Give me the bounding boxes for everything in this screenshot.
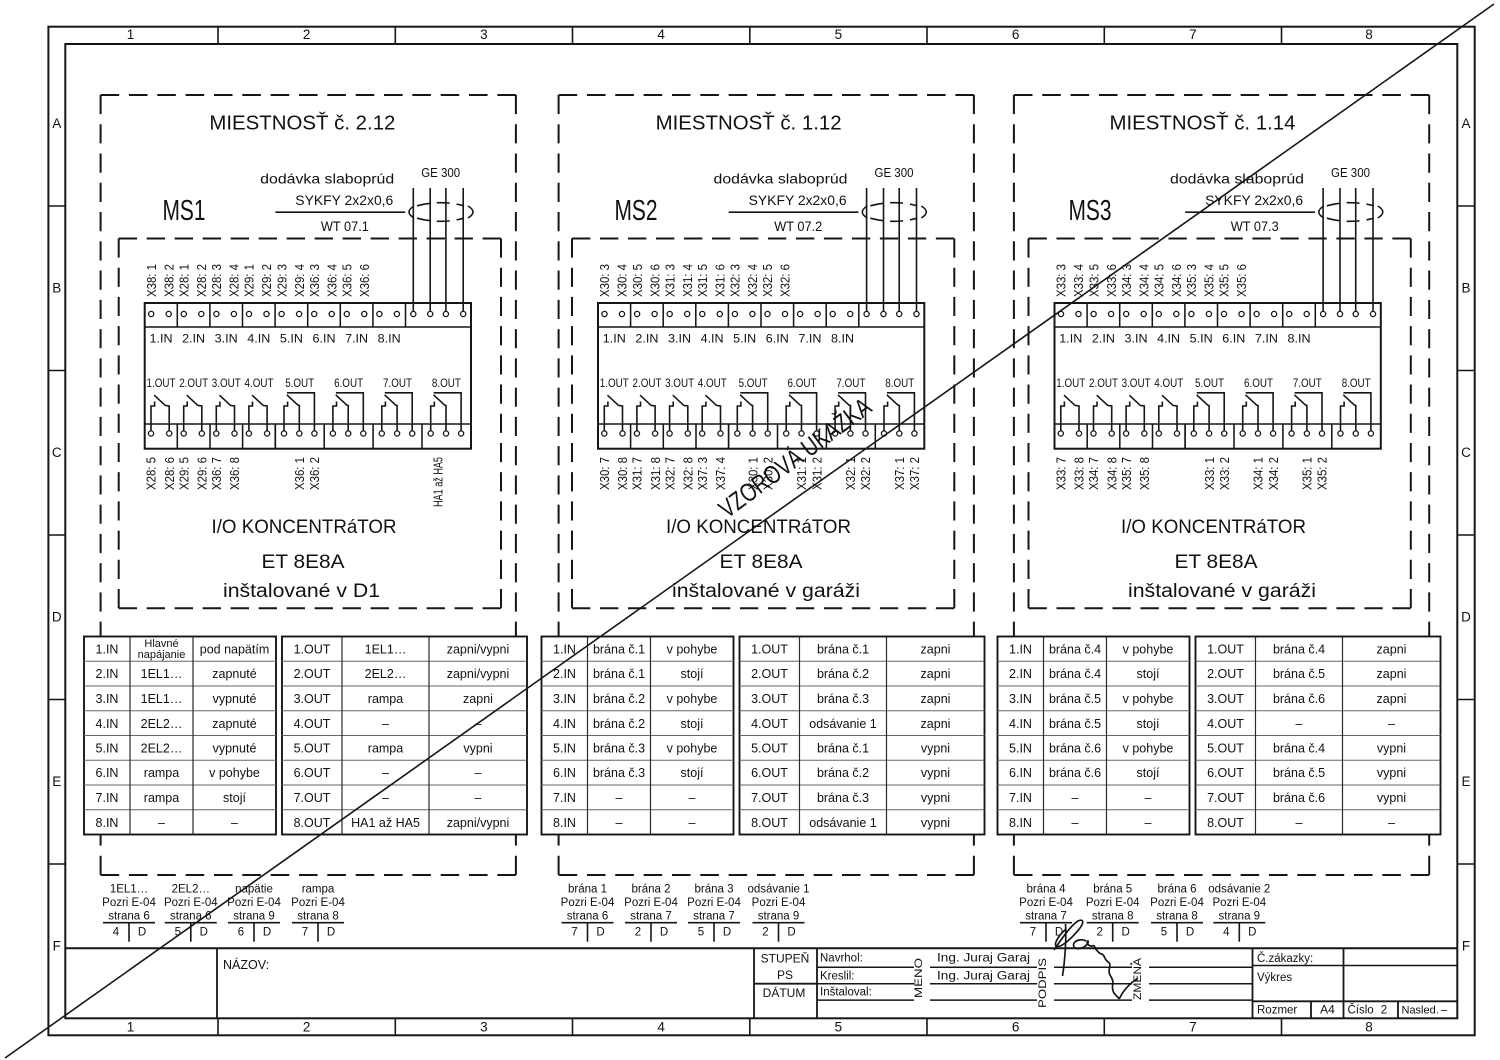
- svg-text:D: D: [1122, 927, 1130, 939]
- svg-text:X36: 1: X36: 1: [292, 457, 307, 490]
- svg-text:–: –: [231, 816, 238, 830]
- svg-text:X35: 3: X35: 3: [1184, 264, 1199, 297]
- svg-text:zapni: zapni: [921, 717, 951, 731]
- svg-text:2.OUT: 2.OUT: [633, 378, 662, 390]
- svg-text:8: 8: [1365, 27, 1373, 42]
- svg-text:X28: 1: X28: 1: [177, 264, 192, 297]
- svg-text:7: 7: [1030, 927, 1036, 939]
- svg-text:napájanie: napájanie: [138, 649, 186, 661]
- svg-text:6.IN: 6.IN: [1009, 766, 1032, 780]
- svg-text:8.OUT: 8.OUT: [1207, 816, 1244, 830]
- svg-text:2EL2…: 2EL2…: [141, 717, 183, 731]
- svg-text:Pozri E-04: Pozri E-04: [752, 897, 806, 909]
- svg-text:vypni: vypni: [1377, 791, 1406, 805]
- svg-text:v pohybe: v pohybe: [1123, 692, 1174, 706]
- svg-text:2.IN: 2.IN: [635, 334, 658, 346]
- svg-text:X31: 6: X31: 6: [713, 264, 728, 297]
- svg-text:6.OUT: 6.OUT: [334, 378, 363, 390]
- svg-text:5.OUT: 5.OUT: [1207, 742, 1244, 756]
- svg-text:MIESTNOSŤ č. 2.12: MIESTNOSŤ č. 2.12: [209, 112, 395, 135]
- svg-text:Inštaloval:: Inštaloval:: [820, 987, 872, 999]
- svg-text:6: 6: [1012, 1020, 1020, 1035]
- svg-text:MENO: MENO: [913, 957, 925, 998]
- svg-text:vypni: vypni: [921, 791, 950, 805]
- svg-text:X36: 5: X36: 5: [340, 264, 355, 297]
- svg-text:brána 6: brána 6: [1157, 884, 1196, 896]
- svg-text:rampa: rampa: [144, 766, 179, 780]
- svg-text:brána č.2: brána č.2: [817, 667, 869, 681]
- svg-text:brána 3: brána 3: [694, 884, 733, 896]
- svg-text:brána č.6: brána č.6: [1273, 692, 1325, 706]
- svg-text:zapnuté: zapnuté: [212, 667, 257, 681]
- svg-text:4.IN: 4.IN: [1009, 717, 1032, 731]
- svg-text:I/O KONCENTRáTOR: I/O KONCENTRáTOR: [212, 516, 397, 538]
- svg-text:D: D: [787, 927, 795, 939]
- svg-text:E: E: [1461, 774, 1470, 789]
- svg-text:1.IN: 1.IN: [1009, 643, 1032, 657]
- svg-text:X31: 7: X31: 7: [630, 457, 645, 490]
- svg-text:strana 9: strana 9: [233, 911, 275, 923]
- svg-text:7.OUT: 7.OUT: [383, 378, 412, 390]
- svg-text:3.OUT: 3.OUT: [751, 692, 788, 706]
- svg-text:Ing. Juraj Garaj: Ing. Juraj Garaj: [937, 971, 1030, 983]
- svg-text:3.OUT: 3.OUT: [1207, 692, 1244, 706]
- svg-text:zapni: zapni: [921, 643, 951, 657]
- svg-text:–: –: [475, 791, 482, 805]
- svg-text:X33: 7: X33: 7: [1054, 457, 1069, 490]
- svg-text:–: –: [1388, 717, 1395, 731]
- svg-text:5.IN: 5.IN: [733, 334, 756, 346]
- svg-text:X30: 3: X30: 3: [597, 264, 612, 297]
- svg-text:2.IN: 2.IN: [182, 334, 205, 346]
- svg-text:8.IN: 8.IN: [1009, 816, 1032, 830]
- svg-text:4.OUT: 4.OUT: [1154, 378, 1183, 390]
- svg-text:Pozri E-04: Pozri E-04: [164, 897, 218, 909]
- svg-text:zapni: zapni: [463, 692, 493, 706]
- svg-text:1.IN: 1.IN: [150, 334, 173, 346]
- svg-text:Navrhol:: Navrhol:: [820, 953, 863, 965]
- svg-text:1.OUT: 1.OUT: [600, 378, 629, 390]
- svg-text:vypni: vypni: [1377, 742, 1406, 756]
- svg-text:X30: 5: X30: 5: [630, 264, 645, 297]
- svg-text:brána č.3: brána č.3: [593, 766, 645, 780]
- svg-text:3.IN: 3.IN: [553, 692, 576, 706]
- svg-text:5: 5: [698, 927, 704, 939]
- svg-text:dodávka slaboprúd: dodávka slaboprúd: [1170, 172, 1304, 187]
- svg-text:PS: PS: [777, 968, 793, 982]
- svg-text:strana 8: strana 8: [1092, 911, 1134, 923]
- svg-text:brána č.6: brána č.6: [1049, 742, 1101, 756]
- svg-text:4.IN: 4.IN: [96, 717, 119, 731]
- svg-text:8.IN: 8.IN: [831, 334, 854, 346]
- svg-text:D: D: [1461, 610, 1471, 625]
- svg-text:brána č.5: brána č.5: [1049, 692, 1101, 706]
- svg-text:X29: 3: X29: 3: [274, 264, 289, 297]
- svg-text:PODPIS: PODPIS: [1037, 958, 1049, 1008]
- svg-text:WT 07.1: WT 07.1: [321, 219, 369, 234]
- svg-text:Rozmer: Rozmer: [1257, 1005, 1297, 1017]
- svg-text:6.OUT: 6.OUT: [751, 766, 788, 780]
- svg-text:D: D: [723, 927, 731, 939]
- svg-text:X34: 1: X34: 1: [1251, 457, 1266, 490]
- svg-text:8.IN: 8.IN: [1288, 334, 1311, 346]
- svg-text:X32: 5: X32: 5: [760, 264, 775, 297]
- svg-text:X33: 1: X33: 1: [1202, 457, 1217, 490]
- svg-text:brána č.1: brána č.1: [817, 742, 869, 756]
- svg-text:4: 4: [657, 27, 665, 42]
- svg-text:brána č.5: brána č.5: [1273, 667, 1325, 681]
- svg-text:X29: 2: X29: 2: [259, 264, 274, 297]
- svg-text:X36: 2: X36: 2: [307, 457, 322, 490]
- svg-text:Pozri E-04: Pozri E-04: [1150, 897, 1204, 909]
- svg-text:X29: 5: X29: 5: [176, 457, 191, 490]
- svg-text:SYKFY 2x2x0,6: SYKFY 2x2x0,6: [749, 193, 847, 208]
- svg-text:vypni: vypni: [921, 816, 950, 830]
- svg-text:7.IN: 7.IN: [96, 791, 119, 805]
- svg-text:5.OUT: 5.OUT: [285, 378, 314, 390]
- svg-text:brána č.1: brána č.1: [593, 643, 645, 657]
- svg-text:X35: 7: X35: 7: [1119, 457, 1134, 490]
- svg-text:X37: 2: X37: 2: [907, 457, 922, 490]
- svg-text:5.IN: 5.IN: [1190, 334, 1213, 346]
- svg-text:5.IN: 5.IN: [96, 742, 119, 756]
- svg-text:MS1: MS1: [163, 195, 206, 227]
- svg-text:strana 8: strana 8: [1156, 911, 1198, 923]
- svg-text:zapni/vypni: zapni/vypni: [447, 667, 510, 681]
- svg-text:8.IN: 8.IN: [96, 816, 119, 830]
- svg-text:Ing. Juraj Garaj: Ing. Juraj Garaj: [937, 953, 1030, 965]
- svg-text:X28: 3: X28: 3: [209, 264, 224, 297]
- svg-text:zapni: zapni: [1377, 667, 1407, 681]
- svg-text:MIESTNOSŤ č. 1.14: MIESTNOSŤ č. 1.14: [1110, 112, 1296, 135]
- svg-text:vypnuté: vypnuté: [213, 742, 257, 756]
- svg-text:X33: 6: X33: 6: [1104, 264, 1119, 297]
- svg-text:X35: 6: X35: 6: [1234, 264, 1249, 297]
- svg-text:X35: 8: X35: 8: [1137, 457, 1152, 490]
- svg-text:napätie: napätie: [235, 884, 273, 896]
- svg-text:4.IN: 4.IN: [553, 717, 576, 731]
- svg-text:strana 7: strana 7: [630, 911, 672, 923]
- svg-text:vypni: vypni: [921, 742, 950, 756]
- svg-text:pod napätím: pod napätím: [200, 643, 270, 657]
- svg-text:X34: 5: X34: 5: [1152, 264, 1167, 297]
- svg-text:v pohybe: v pohybe: [1123, 643, 1174, 657]
- svg-text:2: 2: [303, 27, 311, 42]
- svg-text:WT 07.3: WT 07.3: [1231, 219, 1279, 234]
- svg-text:v pohybe: v pohybe: [1123, 742, 1174, 756]
- svg-text:rampa: rampa: [368, 742, 403, 756]
- svg-text:GE 300: GE 300: [875, 165, 914, 180]
- svg-text:X32: 4: X32: 4: [745, 264, 760, 297]
- svg-text:D: D: [1186, 927, 1194, 939]
- svg-text:SYKFY 2x2x0,6: SYKFY 2x2x0,6: [1205, 193, 1303, 208]
- svg-text:Pozri E-04: Pozri E-04: [1019, 897, 1073, 909]
- svg-text:–: –: [1072, 816, 1079, 830]
- svg-text:4.IN: 4.IN: [247, 334, 270, 346]
- svg-text:1EL1…: 1EL1…: [141, 667, 183, 681]
- svg-text:X35: 4: X35: 4: [1202, 264, 1217, 297]
- svg-text:7: 7: [302, 927, 308, 939]
- svg-text:8.IN: 8.IN: [378, 334, 401, 346]
- svg-text:GE 300: GE 300: [421, 165, 460, 180]
- svg-text:X31: 8: X31: 8: [648, 457, 663, 490]
- svg-text:6: 6: [238, 927, 244, 939]
- svg-text:7: 7: [571, 927, 577, 939]
- svg-text:6.IN: 6.IN: [96, 766, 119, 780]
- svg-text:X28: 2: X28: 2: [194, 264, 209, 297]
- svg-text:zapni: zapni: [1377, 643, 1407, 657]
- svg-text:vypni: vypni: [463, 742, 492, 756]
- svg-text:odsávanie 1: odsávanie 1: [809, 717, 876, 731]
- svg-text:3.OUT: 3.OUT: [665, 378, 694, 390]
- svg-text:X36: 4: X36: 4: [324, 264, 339, 297]
- svg-text:4.OUT: 4.OUT: [751, 717, 788, 731]
- svg-text:8.OUT: 8.OUT: [751, 816, 788, 830]
- svg-text:brána 5: brána 5: [1093, 884, 1132, 896]
- svg-text:6: 6: [1012, 27, 1020, 42]
- svg-text:vypni: vypni: [921, 766, 950, 780]
- svg-text:–: –: [1388, 816, 1395, 830]
- svg-text:8: 8: [1365, 1020, 1373, 1035]
- svg-text:strana 7: strana 7: [1025, 911, 1067, 923]
- svg-text:X30: 7: X30: 7: [597, 457, 612, 490]
- svg-text:v pohybe: v pohybe: [667, 692, 718, 706]
- svg-text:X34: 4: X34: 4: [1136, 264, 1151, 297]
- svg-text:X32: 8: X32: 8: [681, 457, 696, 490]
- svg-text:Pozri E-04: Pozri E-04: [624, 897, 678, 909]
- svg-text:B: B: [1461, 281, 1470, 296]
- svg-text:brána č.2: brána č.2: [817, 766, 869, 780]
- svg-text:6.IN: 6.IN: [1222, 334, 1245, 346]
- svg-text:4: 4: [113, 927, 120, 939]
- svg-text:X29: 4: X29: 4: [292, 264, 307, 297]
- svg-text:–: –: [1441, 1005, 1448, 1017]
- svg-text:7.IN: 7.IN: [345, 334, 368, 346]
- svg-text:7.IN: 7.IN: [1009, 791, 1032, 805]
- svg-text:1.OUT: 1.OUT: [1056, 378, 1085, 390]
- svg-text:5.OUT: 5.OUT: [751, 742, 788, 756]
- svg-text:rampa: rampa: [144, 791, 179, 805]
- svg-text:brána č.5: brána č.5: [1273, 766, 1325, 780]
- svg-text:5.IN: 5.IN: [280, 334, 303, 346]
- svg-text:3.IN: 3.IN: [1009, 692, 1032, 706]
- svg-text:7.IN: 7.IN: [553, 791, 576, 805]
- svg-text:Pozri E-04: Pozri E-04: [561, 897, 615, 909]
- svg-text:–: –: [382, 766, 389, 780]
- svg-text:5: 5: [835, 27, 843, 42]
- svg-text:I/O KONCENTRáTOR: I/O KONCENTRáTOR: [666, 516, 851, 538]
- svg-text:1: 1: [127, 27, 135, 42]
- svg-text:X31: 4: X31: 4: [680, 264, 695, 297]
- svg-text:Č.zákazky:: Č.zákazky:: [1257, 952, 1313, 965]
- svg-text:X31: 5: X31: 5: [695, 264, 710, 297]
- svg-text:I/O KONCENTRáTOR: I/O KONCENTRáTOR: [1121, 516, 1306, 538]
- svg-text:8.OUT: 8.OUT: [294, 816, 331, 830]
- svg-text:brána 1: brána 1: [568, 884, 607, 896]
- svg-text:brána č.6: brána č.6: [1273, 791, 1325, 805]
- svg-text:brána č.1: brána č.1: [593, 667, 645, 681]
- svg-text:zapni/vypni: zapni/vypni: [447, 816, 510, 830]
- svg-text:brána č.4: brána č.4: [1273, 643, 1325, 657]
- svg-text:1.IN: 1.IN: [96, 643, 119, 657]
- svg-text:X28: 4: X28: 4: [227, 264, 242, 297]
- svg-text:2.IN: 2.IN: [96, 667, 119, 681]
- svg-text:4.IN: 4.IN: [1157, 334, 1180, 346]
- svg-text:stojí: stojí: [1137, 766, 1160, 780]
- svg-text:strana 9: strana 9: [1219, 911, 1261, 923]
- svg-text:ET 8E8A: ET 8E8A: [720, 551, 803, 573]
- svg-text:–: –: [1072, 791, 1079, 805]
- svg-text:–: –: [616, 816, 623, 830]
- svg-text:3.IN: 3.IN: [215, 334, 238, 346]
- svg-text:zapnuté: zapnuté: [212, 717, 257, 731]
- svg-text:stojí: stojí: [681, 717, 704, 731]
- svg-text:Výkres: Výkres: [1257, 972, 1292, 984]
- svg-text:6.IN: 6.IN: [766, 334, 789, 346]
- svg-text:v pohybe: v pohybe: [667, 742, 718, 756]
- svg-text:3.OUT: 3.OUT: [212, 378, 241, 390]
- svg-text:6.OUT: 6.OUT: [788, 378, 817, 390]
- svg-text:X32: 1: X32: 1: [843, 457, 858, 490]
- svg-text:X34: 3: X34: 3: [1119, 264, 1134, 297]
- svg-text:brána č.4: brána č.4: [1049, 643, 1101, 657]
- svg-text:X32: 3: X32: 3: [728, 264, 743, 297]
- svg-text:brána č.4: brána č.4: [1049, 667, 1101, 681]
- svg-text:5: 5: [1161, 927, 1167, 939]
- svg-text:–: –: [1145, 816, 1152, 830]
- svg-text:zapni: zapni: [1377, 692, 1407, 706]
- svg-text:2.OUT: 2.OUT: [1207, 667, 1244, 681]
- svg-text:3: 3: [480, 1020, 488, 1035]
- svg-text:odsávanie 2: odsávanie 2: [1208, 884, 1270, 896]
- svg-text:–: –: [475, 766, 482, 780]
- svg-text:X34: 2: X34: 2: [1266, 457, 1281, 490]
- svg-text:brána 4: brána 4: [1026, 884, 1066, 896]
- svg-text:4.OUT: 4.OUT: [245, 378, 274, 390]
- svg-text:C: C: [52, 445, 62, 460]
- svg-text:X33: 4: X33: 4: [1071, 264, 1086, 297]
- svg-text:Pozri E-04: Pozri E-04: [227, 897, 281, 909]
- svg-text:–: –: [1145, 791, 1152, 805]
- svg-text:X37: 1: X37: 1: [892, 457, 907, 490]
- svg-text:v pohybe: v pohybe: [667, 643, 718, 657]
- svg-text:strana 9: strana 9: [758, 911, 800, 923]
- svg-text:3.IN: 3.IN: [96, 692, 119, 706]
- svg-text:X33: 3: X33: 3: [1054, 264, 1069, 297]
- svg-text:X36: 6: X36: 6: [357, 264, 372, 297]
- svg-text:5.OUT: 5.OUT: [739, 378, 768, 390]
- svg-text:4.OUT: 4.OUT: [698, 378, 727, 390]
- svg-text:7.OUT: 7.OUT: [294, 791, 331, 805]
- svg-text:2EL2…: 2EL2…: [141, 742, 183, 756]
- svg-text:X38: 2: X38: 2: [161, 264, 176, 297]
- svg-text:inštalované v garáži: inštalované v garáži: [1128, 581, 1316, 602]
- svg-text:X38: 1: X38: 1: [144, 264, 159, 297]
- svg-text:dodávka slaboprúd: dodávka slaboprúd: [260, 172, 394, 187]
- svg-text:brána č.3: brána č.3: [817, 791, 869, 805]
- svg-text:1.IN: 1.IN: [1059, 334, 1082, 346]
- svg-text:Pozri E-04: Pozri E-04: [687, 897, 741, 909]
- svg-text:3.OUT: 3.OUT: [294, 692, 331, 706]
- svg-text:strana 6: strana 6: [108, 911, 150, 923]
- svg-text:A4: A4: [1320, 1003, 1335, 1017]
- svg-text:2EL2…: 2EL2…: [365, 667, 407, 681]
- svg-text:rampa: rampa: [302, 884, 335, 896]
- svg-text:1.IN: 1.IN: [603, 334, 626, 346]
- svg-text:7.IN: 7.IN: [1255, 334, 1278, 346]
- svg-text:A: A: [1461, 116, 1470, 131]
- svg-text:1.OUT: 1.OUT: [294, 643, 331, 657]
- svg-text:MIESTNOSŤ č. 1.12: MIESTNOSŤ č. 1.12: [656, 112, 842, 135]
- svg-text:1.OUT: 1.OUT: [147, 378, 176, 390]
- svg-text:brána 2: brána 2: [631, 884, 670, 896]
- svg-text:HA1 až HA5: HA1 až HA5: [431, 457, 446, 507]
- svg-text:D: D: [596, 927, 604, 939]
- svg-text:2: 2: [1096, 927, 1102, 939]
- svg-text:–: –: [1296, 816, 1303, 830]
- svg-text:3.IN: 3.IN: [668, 334, 691, 346]
- svg-text:6.OUT: 6.OUT: [1207, 766, 1244, 780]
- svg-text:Pozri E-04: Pozri E-04: [291, 897, 345, 909]
- svg-text:X37: 3: X37: 3: [695, 457, 710, 490]
- svg-text:3.IN: 3.IN: [1125, 334, 1148, 346]
- svg-text:X34: 8: X34: 8: [1104, 457, 1119, 490]
- svg-text:6.IN: 6.IN: [313, 334, 336, 346]
- svg-text:Kreslil:: Kreslil:: [820, 971, 855, 983]
- svg-text:8.OUT: 8.OUT: [1342, 378, 1371, 390]
- svg-text:X29: 1: X29: 1: [242, 264, 257, 297]
- svg-text:F: F: [53, 939, 61, 954]
- svg-text:Pozri E-04: Pozri E-04: [1086, 897, 1140, 909]
- svg-text:2: 2: [303, 1020, 311, 1035]
- svg-text:inštalované v garáži: inštalované v garáži: [672, 581, 860, 602]
- svg-text:6.OUT: 6.OUT: [294, 766, 331, 780]
- svg-text:stojí: stojí: [1137, 667, 1160, 681]
- svg-text:X33: 2: X33: 2: [1217, 457, 1232, 490]
- svg-text:inštalované v D1: inštalované v D1: [223, 581, 380, 602]
- svg-text:2: 2: [1381, 1005, 1387, 1017]
- svg-text:1: 1: [127, 1020, 135, 1035]
- svg-text:X34: 6: X34: 6: [1169, 264, 1184, 297]
- svg-text:stojí: stojí: [681, 766, 704, 780]
- svg-text:X36: 7: X36: 7: [209, 457, 224, 490]
- svg-text:NÁZOV:: NÁZOV:: [223, 957, 269, 972]
- svg-text:brána č.5: brána č.5: [1049, 717, 1101, 731]
- svg-text:vypni: vypni: [1377, 766, 1406, 780]
- svg-text:1EL1…: 1EL1…: [365, 643, 407, 657]
- svg-text:ET 8E8A: ET 8E8A: [262, 551, 345, 573]
- svg-text:8.OUT: 8.OUT: [885, 378, 914, 390]
- svg-text:–: –: [689, 791, 696, 805]
- svg-text:STUPEŇ: STUPEŇ: [761, 951, 810, 966]
- svg-text:D: D: [327, 927, 335, 939]
- svg-text:X35: 2: X35: 2: [1315, 457, 1330, 490]
- svg-text:6.IN: 6.IN: [553, 766, 576, 780]
- svg-text:MS2: MS2: [615, 195, 658, 227]
- svg-text:X35: 5: X35: 5: [1217, 264, 1232, 297]
- svg-text:2.OUT: 2.OUT: [294, 667, 331, 681]
- svg-text:5: 5: [835, 1020, 843, 1035]
- svg-text:brána č.2: brána č.2: [593, 717, 645, 731]
- svg-text:2.IN: 2.IN: [1092, 334, 1115, 346]
- svg-text:WT 07.2: WT 07.2: [774, 219, 822, 234]
- svg-text:X32: 7: X32: 7: [662, 457, 677, 490]
- svg-text:v pohybe: v pohybe: [209, 766, 260, 780]
- svg-text:1.OUT: 1.OUT: [1207, 643, 1244, 657]
- svg-text:odsávanie 1: odsávanie 1: [747, 884, 809, 896]
- svg-text:1EL1…: 1EL1…: [110, 884, 148, 896]
- svg-text:3.OUT: 3.OUT: [1122, 378, 1151, 390]
